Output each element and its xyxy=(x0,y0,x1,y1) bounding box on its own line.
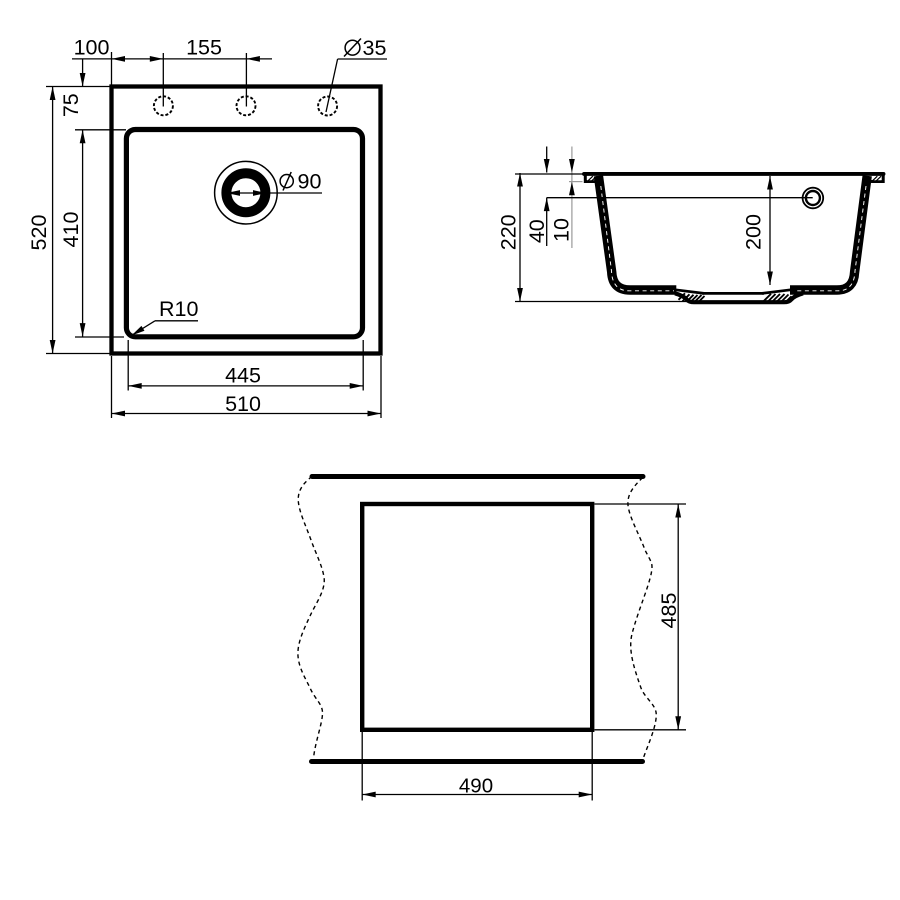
svg-text:75: 75 xyxy=(59,93,83,117)
svg-text:220: 220 xyxy=(497,214,521,250)
svg-text:35: 35 xyxy=(363,36,387,60)
svg-text:100: 100 xyxy=(74,35,110,59)
svg-text:445: 445 xyxy=(225,363,261,387)
svg-text:520: 520 xyxy=(27,215,51,251)
svg-text:R10: R10 xyxy=(159,297,198,321)
svg-text:40: 40 xyxy=(525,219,549,243)
svg-text:90: 90 xyxy=(298,169,322,193)
svg-text:200: 200 xyxy=(742,214,766,250)
svg-text:485: 485 xyxy=(657,593,681,629)
svg-text:10: 10 xyxy=(550,218,574,242)
svg-text:410: 410 xyxy=(59,212,83,248)
svg-text:490: 490 xyxy=(459,774,493,797)
svg-text:510: 510 xyxy=(225,392,261,416)
svg-text:155: 155 xyxy=(186,35,222,59)
